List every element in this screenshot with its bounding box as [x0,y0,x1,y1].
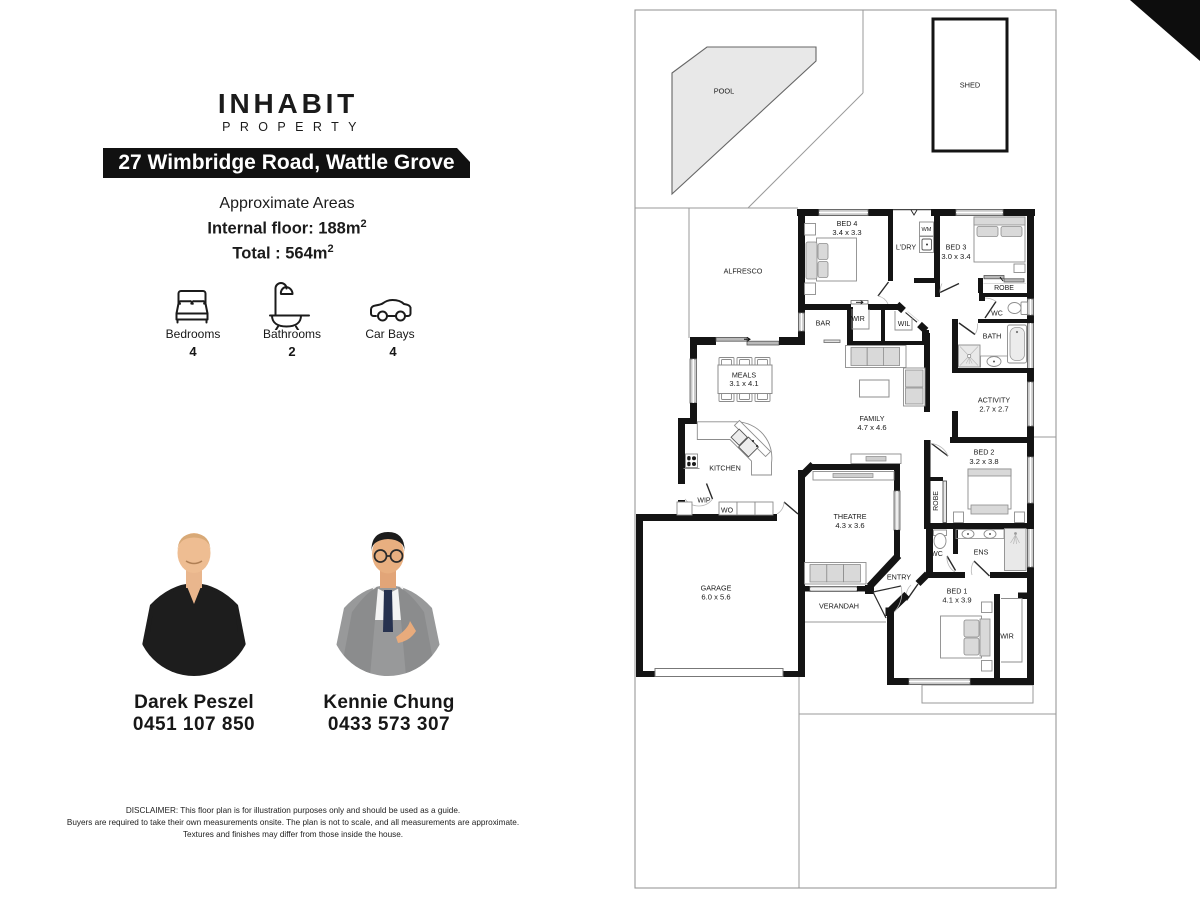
svg-text:SHED: SHED [960,81,981,90]
svg-text:BATH: BATH [983,332,1002,341]
svg-text:3.4 x 3.3: 3.4 x 3.3 [832,228,861,237]
svg-text:VERANDAH: VERANDAH [819,602,859,611]
svg-text:ROBE: ROBE [994,285,1014,292]
svg-text:KITCHEN: KITCHEN [709,464,741,473]
svg-text:4.3 x 3.6: 4.3 x 3.6 [835,521,864,530]
svg-text:WM: WM [922,227,932,233]
svg-text:6.0 x 5.6: 6.0 x 5.6 [701,593,730,602]
svg-text:WIR: WIR [851,316,865,323]
svg-text:THEATRE: THEATRE [833,512,866,521]
svg-text:POOL: POOL [714,87,735,96]
svg-text:GARAGE: GARAGE [701,584,732,593]
svg-text:WIR: WIR [1000,634,1014,641]
svg-text:BED 3: BED 3 [946,243,967,252]
svg-text:WIP: WIP [697,498,711,505]
svg-text:ROBE: ROBE [933,491,940,511]
svg-text:ENTRY: ENTRY [887,573,911,582]
svg-text:BED 2: BED 2 [974,448,995,457]
svg-text:3.1 x 4.1: 3.1 x 4.1 [729,379,758,388]
svg-text:ENS: ENS [974,548,989,557]
svg-text:4.7 x 4.6: 4.7 x 4.6 [857,423,886,432]
svg-text:BAR: BAR [816,319,831,328]
svg-text:4.1 x 3.9: 4.1 x 3.9 [942,596,971,605]
svg-text:WO: WO [721,508,734,515]
svg-text:ACTIVITY: ACTIVITY [978,396,1011,405]
svg-text:3.0 x 3.4: 3.0 x 3.4 [941,252,970,261]
svg-text:BED 4: BED 4 [837,219,858,228]
svg-text:WC: WC [991,311,1003,318]
svg-text:ALFRESCO: ALFRESCO [724,267,763,276]
svg-text:L’DRY: L’DRY [896,243,916,252]
svg-text:2.7 x 2.7: 2.7 x 2.7 [979,405,1008,414]
svg-text:FAMILY: FAMILY [859,414,884,423]
svg-text:BED 1: BED 1 [947,587,968,596]
svg-text:3.2 x 3.8: 3.2 x 3.8 [969,457,998,466]
svg-text:WIL: WIL [898,321,911,328]
svg-text:WC: WC [931,551,943,558]
